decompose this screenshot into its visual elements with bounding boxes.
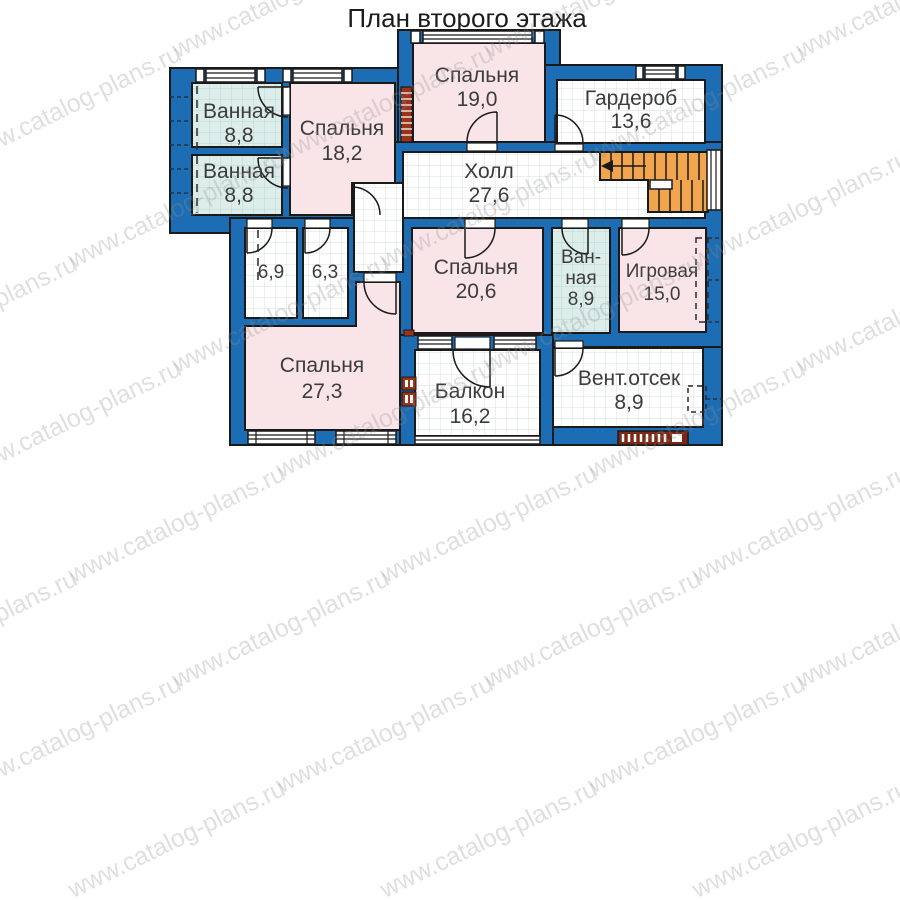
svg-text:20,6: 20,6 <box>456 280 497 303</box>
door-gap <box>364 273 396 282</box>
svg-text:18,2: 18,2 <box>322 142 363 165</box>
window-icon <box>535 31 544 43</box>
svg-text:8,8: 8,8 <box>224 184 253 207</box>
window-icon <box>196 69 204 82</box>
window-icon <box>257 69 265 82</box>
window-icon <box>283 69 291 82</box>
window-icon <box>206 69 255 82</box>
svg-text:27,6: 27,6 <box>469 184 510 207</box>
svg-text:6,9: 6,9 <box>258 262 284 283</box>
svg-text:27,3: 27,3 <box>302 380 343 403</box>
window-icon <box>248 431 315 444</box>
svg-text:Спальня: Спальня <box>435 64 519 87</box>
svg-text:Спальня: Спальня <box>434 256 518 279</box>
door-gap <box>455 337 490 349</box>
window-icon <box>293 69 342 82</box>
door-gap <box>562 219 588 228</box>
chimney-icon <box>401 87 412 142</box>
window-icon <box>494 336 536 349</box>
svg-text:8,9: 8,9 <box>568 289 594 310</box>
svg-text:8,8: 8,8 <box>224 124 253 147</box>
svg-text:16,2: 16,2 <box>450 405 491 428</box>
door-gap <box>283 158 290 186</box>
door-gap <box>467 143 497 151</box>
svg-text:Спальня: Спальня <box>300 117 384 140</box>
svg-text:13,6: 13,6 <box>611 110 652 133</box>
door-gap <box>555 341 583 348</box>
svg-text:Спальня: Спальня <box>280 354 364 377</box>
window-icon <box>707 150 721 210</box>
radiator-icon <box>402 377 416 390</box>
svg-text:Гардероб: Гардероб <box>585 87 677 110</box>
door-gap <box>247 219 272 228</box>
svg-text:Ванная: Ванная <box>203 160 275 183</box>
window-icon <box>678 66 685 79</box>
floor-plan: Ванная 8,8 Ванная 8,8 Спальня 18,2 Спаль… <box>0 0 900 900</box>
window-icon <box>344 69 352 82</box>
room-label-hall: Холл 27,6 <box>464 160 514 207</box>
window-icon <box>411 31 420 43</box>
vent-grille-icon <box>618 431 688 445</box>
svg-text:15,0: 15,0 <box>644 284 681 305</box>
svg-text:Ван-: Ван- <box>561 247 601 268</box>
window-icon <box>423 31 532 43</box>
door-gap <box>283 87 290 115</box>
svg-text:Балкон: Балкон <box>435 380 505 403</box>
room-floor-corridor <box>354 183 403 272</box>
floor-plan-page: План второго этажа <box>0 0 900 900</box>
window-icon <box>418 336 452 349</box>
radiator-icon <box>402 392 416 406</box>
door-gap <box>555 144 583 151</box>
door-gap <box>305 219 330 228</box>
stair-landing-notch <box>650 180 672 189</box>
door-gap <box>622 219 649 228</box>
svg-text:Холл: Холл <box>464 160 514 183</box>
svg-text:Ванная: Ванная <box>203 100 275 123</box>
flue-icon <box>404 330 414 336</box>
window-icon <box>336 431 396 444</box>
svg-text:8,9: 8,9 <box>614 391 643 414</box>
window-icon <box>636 66 643 79</box>
svg-text:ная: ная <box>565 268 596 289</box>
room-label-63: 6,3 <box>312 262 338 283</box>
window-icon <box>645 66 676 79</box>
door-gap <box>465 219 495 228</box>
svg-text:19,0: 19,0 <box>457 88 498 111</box>
svg-text:6,3: 6,3 <box>312 262 338 283</box>
room-label-69: 6,9 <box>258 262 284 283</box>
svg-text:Вент.отсек: Вент.отсек <box>578 367 681 390</box>
svg-text:Игровая: Игровая <box>626 261 698 282</box>
